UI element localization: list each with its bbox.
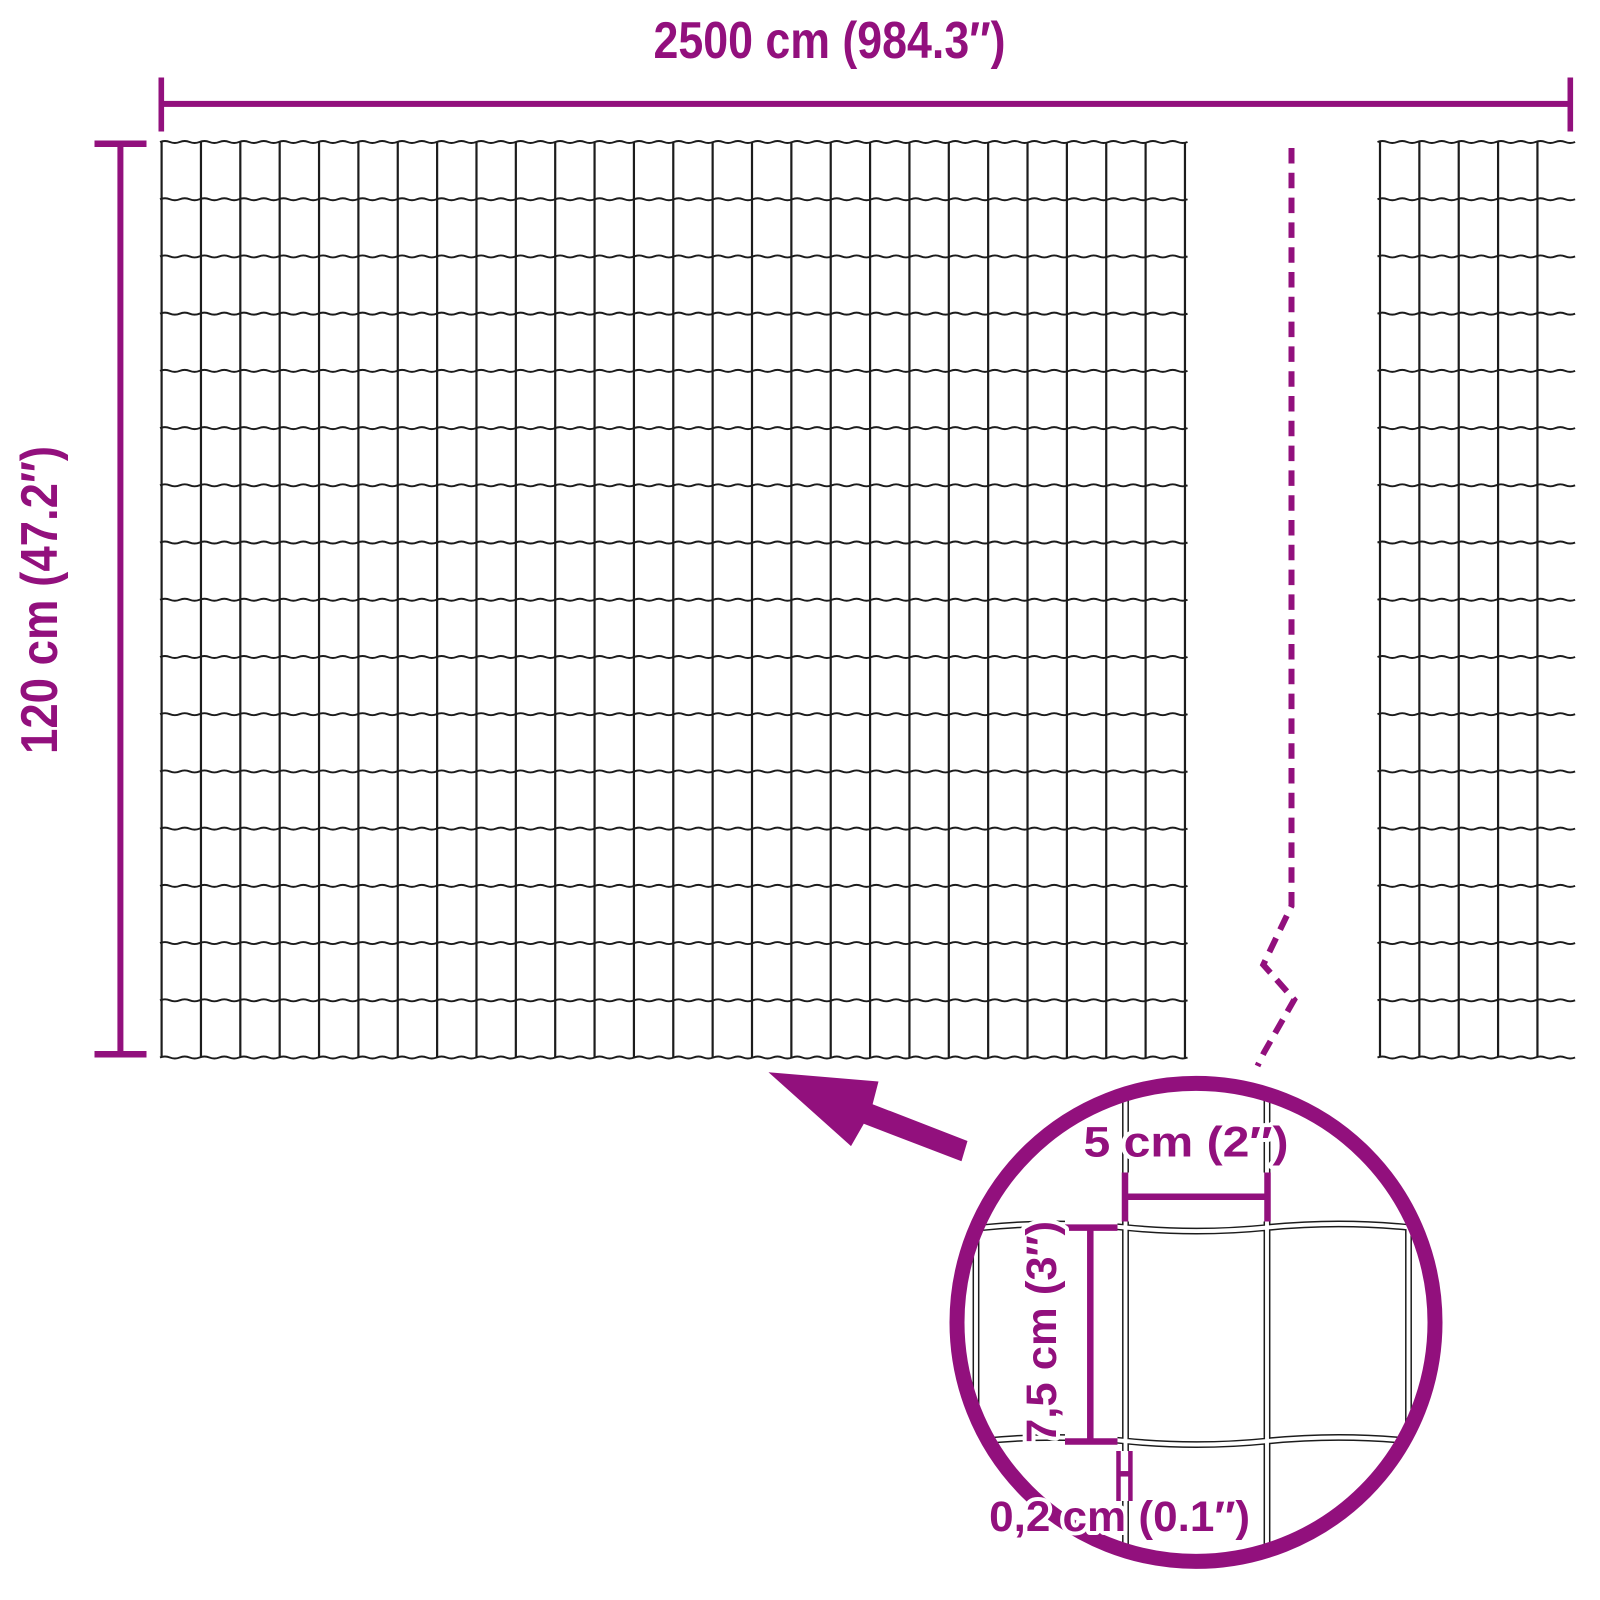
svg-text:0,2 cm (0.1″): 0,2 cm (0.1″) (989, 1493, 1250, 1541)
svg-text:2500 cm (984.3″): 2500 cm (984.3″) (654, 12, 1006, 70)
svg-text:120 cm (47.2″): 120 cm (47.2″) (11, 446, 69, 754)
svg-text:7,5 cm (3″): 7,5 cm (3″) (1018, 1221, 1066, 1443)
svg-text:5 cm (2″): 5 cm (2″) (1084, 1119, 1289, 1167)
